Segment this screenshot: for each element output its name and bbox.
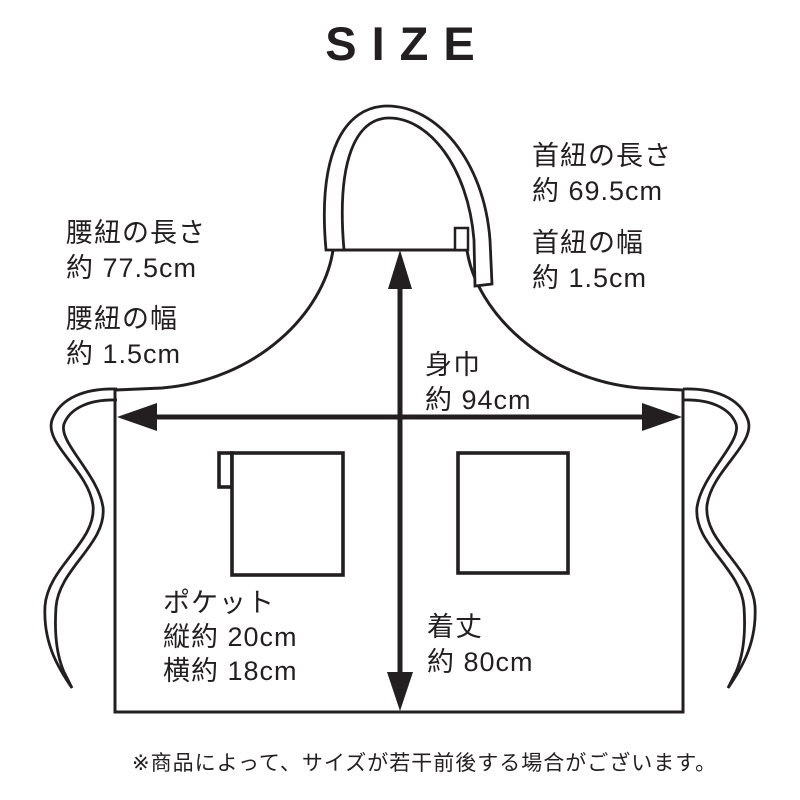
waist-strap-length-name: 腰紐の長さ [66,216,206,251]
waist-strap-width-name: 腰紐の幅 [66,302,181,337]
label-pocket: ポケット 縦約 20cm 横約 18cm [163,586,298,688]
body-width-name: 身巾 [425,348,532,383]
apron-illustration [0,0,800,800]
waist-strap-length-value: 約 77.5cm [66,251,206,286]
label-neck-strap-length: 首紐の長さ 約 69.5cm [532,139,672,209]
label-waist-strap-width: 腰紐の幅 約 1.5cm [66,302,181,372]
neck-strap-width-value: 約 1.5cm [532,261,647,296]
garment-length-value: 約 80cm [427,645,534,680]
size-diagram: SIZE [0,0,800,800]
pocket-left-tab-icon [219,453,232,487]
neck-strap-length-name: 首紐の長さ [532,139,672,174]
waist-strap-right [683,389,755,688]
label-waist-strap-length: 腰紐の長さ 約 77.5cm [66,216,206,286]
neck-strap-length-value: 約 69.5cm [532,174,672,209]
pocket-width-value: 横約 18cm [163,654,298,688]
garment-length-name: 着丈 [427,610,534,645]
neck-strap-tab-icon [455,228,468,250]
label-garment-length: 着丈 約 80cm [427,610,534,680]
pocket-left [219,453,343,575]
waist-strap-width-value: 約 1.5cm [66,337,181,372]
body-width-value: 約 94cm [425,383,532,418]
label-neck-strap-width: 首紐の幅 約 1.5cm [532,226,647,296]
pocket-name: ポケット [163,586,298,620]
pocket-right [458,453,568,573]
footnote: ※商品によって、サイズが若干前後する場合がございます。 [132,747,717,777]
label-body-width: 身巾 約 94cm [425,348,532,418]
neck-strap-width-name: 首紐の幅 [532,226,647,261]
pocket-height-value: 縦約 20cm [163,620,298,654]
waist-strap-left [45,389,117,688]
